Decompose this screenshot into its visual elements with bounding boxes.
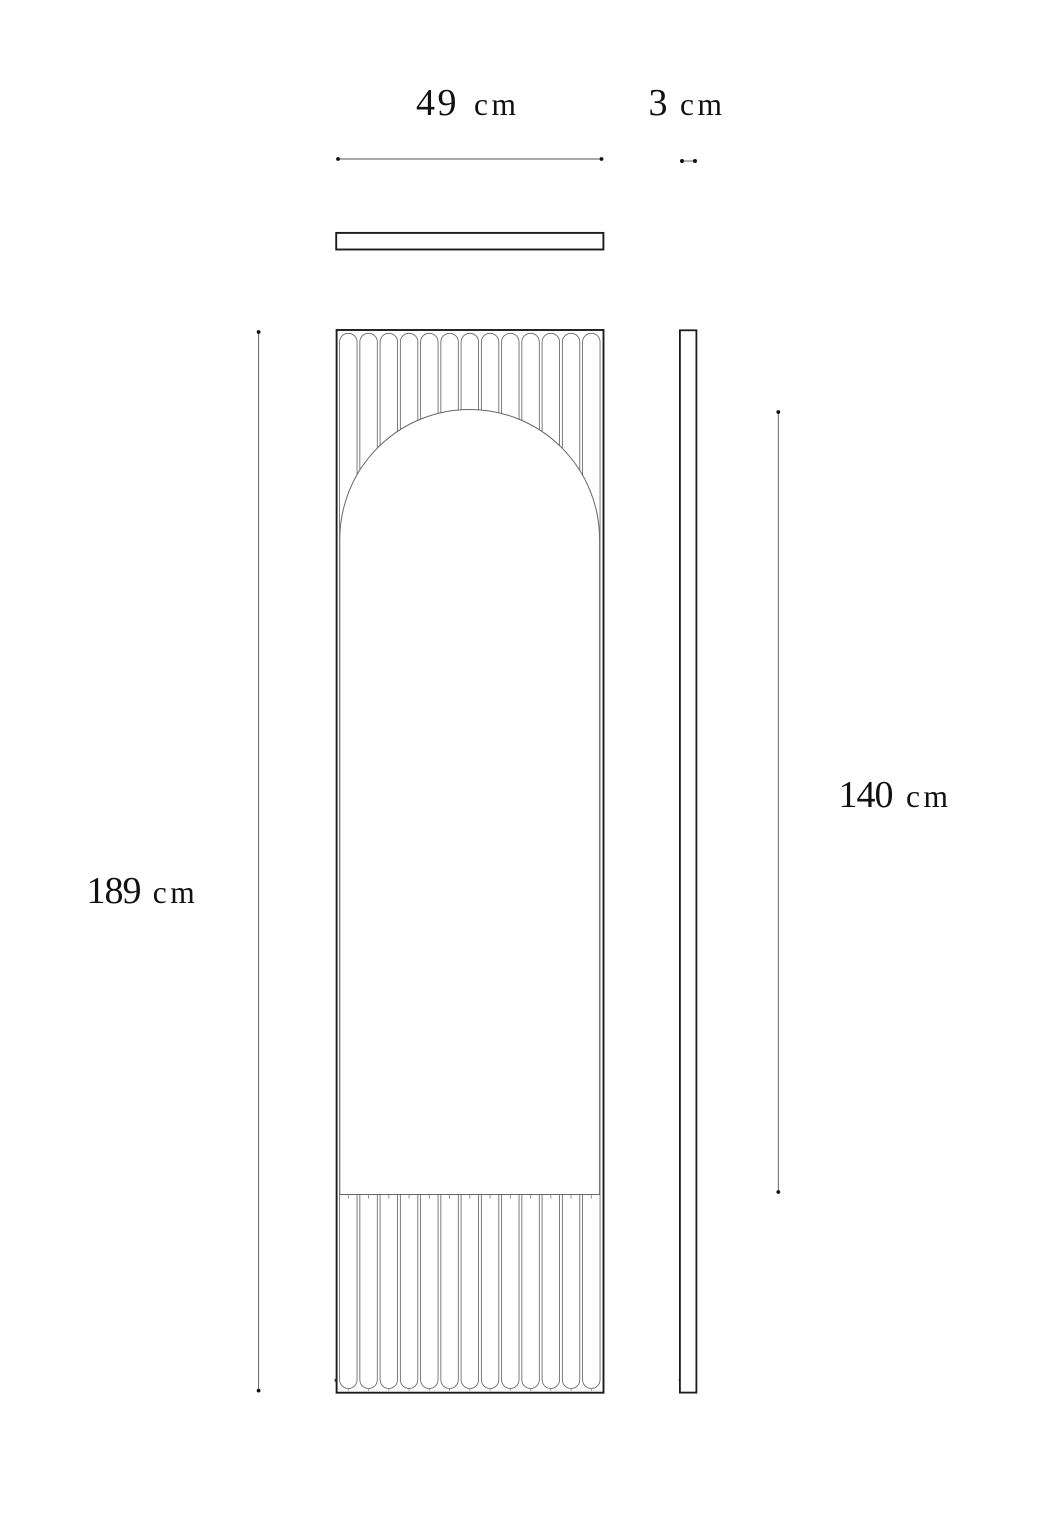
svg-text:cm: cm: [153, 875, 198, 910]
svg-text:140: 140: [839, 774, 893, 816]
svg-text:cm: cm: [906, 779, 951, 814]
svg-text:cm: cm: [474, 87, 519, 122]
svg-text:189: 189: [87, 870, 141, 912]
svg-text:49: 49: [416, 82, 459, 124]
svg-text:cm: cm: [680, 87, 725, 122]
svg-text:3: 3: [649, 82, 668, 124]
